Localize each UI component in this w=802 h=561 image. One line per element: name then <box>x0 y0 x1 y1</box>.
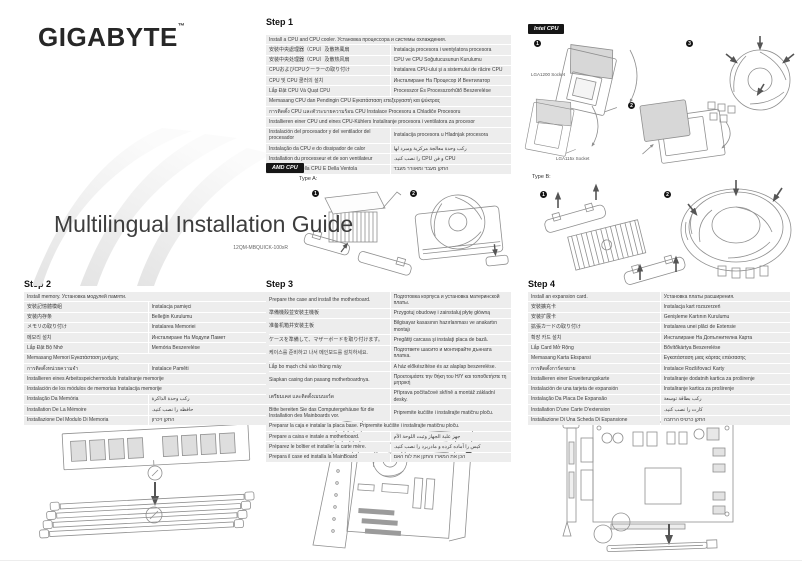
lang-cell: Installazione Di Una Scheda Di Espansion… <box>528 416 660 425</box>
lang-row: メモリの取り付けInstalarea Memoriei <box>24 323 269 332</box>
lang-cell: Инсталиране На Допълнителна Карта <box>661 333 790 342</box>
lang-cell: CPU 및 CPU 쿨러의 설치 <box>266 76 390 85</box>
intel-cpu-badge: Intel CPU <box>528 24 564 34</box>
lang-cell: Installation De La Mémoire <box>24 405 148 414</box>
lang-cell: Installazione Del Modulo Di Memoria <box>24 416 148 425</box>
intel-step1-marker: 1 <box>534 40 541 47</box>
lang-cell: Installieren einer CPU und eines CPU-Küh… <box>266 117 511 126</box>
lang-cell: Instalacja pamięci <box>149 302 269 311</box>
lang-cell: Příprava počítačové skříně a montáž zákl… <box>391 389 511 405</box>
lang-cell: Instalação Da Placa De Expansão <box>528 395 660 404</box>
lang-row: 케이스를 준비하고 나서 메인보드를 설치하세요.Подгответе шаси… <box>266 346 511 362</box>
lang-row: 準備機殼並安裝主機板Przygotuj obudowę i zainstaluj… <box>266 309 511 318</box>
lang-cell: Install memory. Установка модулей памяти… <box>24 292 269 301</box>
lang-cell: Processzor És Processzorhűtő Beszerelése <box>391 86 511 95</box>
lang-cell: Memória Beszerelése <box>149 343 269 352</box>
amd-step1-marker: 1 <box>312 190 319 197</box>
lang-cell: เตรียมเคส และติดตั้งเมนบอร์ด <box>266 389 390 405</box>
lang-row: ケースを準備して、マザーボードを取り付けます。Pregătiţi carcasa… <box>266 335 511 344</box>
lang-cell: Pripremite kućište i instalirajte matičn… <box>391 405 511 421</box>
lang-cell: Instalação Da Memória <box>24 395 148 404</box>
lang-row: Install a CPU and CPU cooler. Установка … <box>266 35 511 44</box>
lang-cell: התקן כרטיס הרחבה <box>661 416 790 425</box>
lang-cell: Preparar la caja e instalar la placa bas… <box>266 422 511 431</box>
type-b-label: Type B: <box>532 174 551 180</box>
lang-row: 准备机箱并安装主板Bilgisayar kasasının hazırlanma… <box>266 319 511 335</box>
lang-row: Memasang CPU dan Pendingin CPU Εγκατάστα… <box>266 97 511 106</box>
lang-row: Siapkan casing dan pasang motherboardnya… <box>266 372 511 388</box>
lang-cell: Prepara il case ed installa la MainBoard <box>266 453 390 462</box>
lang-row: Prepara il case ed installa la MainBoard… <box>266 453 511 462</box>
lang-cell: Instalarea unei plăci de Extensie <box>661 323 790 332</box>
lang-cell: ケースを準備して、マザーボードを取り付けます。 <box>266 335 390 344</box>
lang-cell: ركب وحدة الذاكرة <box>149 395 269 404</box>
lang-row: Lắp Đặt Bộ NhớMemória Beszerelése <box>24 343 269 352</box>
page-title: Multilingual Installation Guide <box>54 211 353 238</box>
lang-cell: Подгответе шасито и монтирайте дънната п… <box>391 346 511 362</box>
type-b-step1-marker: 1 <box>540 191 547 198</box>
lang-row: 메모리 설치Инсталиране На Модули Памет <box>24 333 269 342</box>
lang-cell: Προετοιμάστε την θήκη του Η/Υ και τοποθε… <box>391 372 511 388</box>
lang-row: 安裝記憶體模組Instalacja pamięci <box>24 302 269 311</box>
lang-cell: Установка платы расширения. <box>661 292 790 301</box>
lang-cell: Instalarea Memoriei <box>149 323 269 332</box>
lang-cell: Instalacja procesora i wentylatora proce… <box>391 45 511 54</box>
lang-cell: 準備機殼並安裝主機板 <box>266 309 390 318</box>
lang-cell: 케이스를 준비하고 나서 메인보드를 설치하세요. <box>266 346 390 362</box>
lang-row: Instalación del procesador y del ventila… <box>266 128 511 144</box>
lang-cell: 安装内存条 <box>24 313 148 322</box>
lang-row: Installazione Del Modulo Di Memoriaהתקן … <box>24 416 269 425</box>
memory-installation-illustration <box>35 423 275 541</box>
lang-cell: Pregătiţi carcasa şi instalaţi placa de … <box>391 335 511 344</box>
lang-row: Install an expansion card.Установка плат… <box>528 292 790 301</box>
lang-cell: Genişleme Kartının Kurulumu <box>661 313 790 322</box>
lang-row: Installieren einer ErweiterungskarteInst… <box>528 374 790 383</box>
lang-row: Préparez le boîtier et installer la cart… <box>266 442 511 451</box>
lang-row: การติดตั้ง CPU และตัวระบายความร้อน CPU I… <box>266 107 511 116</box>
lang-cell: 安裝中央處理器（CPU）及散熱風扇 <box>266 45 390 54</box>
lang-cell: 安裝記憶體模組 <box>24 302 148 311</box>
lang-row: Instalação Da Placa De Expansãoركب بطاقة… <box>528 395 790 404</box>
lang-cell: Bitte bereiten Sie das Computergehäuse f… <box>266 405 390 421</box>
lang-row: 安装内存条Belleğin Kurulumu <box>24 313 269 322</box>
lang-cell: CPU و فن CPU را نصب كنيد. <box>391 154 511 163</box>
lang-cell: حافظه را نصب كنيد. <box>149 405 269 414</box>
lang-row: การติดตั้งการ์ดขยายInstalace Rozšiřovací… <box>528 364 790 373</box>
lang-row: Prepare the case and install the motherb… <box>266 292 511 308</box>
lang-cell: 安装中央处理器（CPU）及散热风扇 <box>266 56 390 65</box>
lang-row: Prepare a caixa e instale a motherboard.… <box>266 432 511 441</box>
trademark-symbol: ™ <box>178 23 186 30</box>
lang-cell: Memasang CPU dan Pendingin CPU Εγκατάστα… <box>266 97 511 106</box>
lga1200-socket-label: LGA1200 Socket <box>531 72 565 77</box>
lang-cell: 安装扩展卡 <box>528 313 660 322</box>
lang-cell: Instalacja kart rozszerzeń <box>661 302 790 311</box>
lang-cell: Instaliranje kartica za proširenje <box>661 385 790 394</box>
lang-row: Installation De La Mémoireحافظه را نصب ك… <box>24 405 269 414</box>
step1-heading: Step 1 <box>266 17 293 27</box>
lang-cell: התקן מעבד ומאוורר מעבד <box>391 165 511 174</box>
lang-row: 安裝中央處理器（CPU）及散熱風扇Instalacja procesora i … <box>266 45 511 54</box>
intel-step2-marker: 2 <box>628 102 635 109</box>
lang-cell: CPU ve CPU Soğutucusunun Kurulumu <box>391 56 511 65</box>
lang-row: 확장 카드 설치Инсталиране На Допълнителна Карт… <box>528 333 790 342</box>
lang-cell: 확장 카드 설치 <box>528 333 660 342</box>
lang-row: Memasang Memori Εγκατάσταση μνήμης <box>24 354 269 363</box>
lang-row: 安裝擴充卡Instalacja kart rozszerzeń <box>528 302 790 311</box>
lang-row: Preparar la caja e instalar la placa bas… <box>266 422 511 431</box>
lang-row: 拡張カードの取り付けInstalarea unei plăci de Exten… <box>528 323 790 332</box>
amd-cpu-badge: AMD CPU <box>266 163 304 173</box>
lang-cell: ركب بطاقة توسعة <box>661 395 790 404</box>
lang-cell: הכן את המארז והתקן את לוח האם <box>391 453 511 462</box>
lang-cell: התקן זיכרון <box>149 416 269 425</box>
lang-cell: 安裝擴充卡 <box>528 302 660 311</box>
lang-cell: جهز علبة الجهاز وثبت اللوحة الأم <box>391 432 511 441</box>
lang-cell: كارت را نصب كنيد. <box>661 405 790 414</box>
lang-cell: Instaliranje dodatnih kartica za prošire… <box>661 374 790 383</box>
part-number: 12QM-MBQUICK-100xR <box>150 245 288 251</box>
lang-cell: Подготовка корпуса и установка материнск… <box>391 292 511 308</box>
lang-cell: Instalace Rozšiřovací Karty <box>661 364 790 373</box>
lang-cell: Instalacija procesora u Hladnjak proceso… <box>391 128 511 144</box>
lang-row: Install memory. Установка модулей памяти… <box>24 292 269 301</box>
lang-row: Instalación de los módulos de memorias I… <box>24 385 269 394</box>
lang-cell: Instalación de una tarjeta de expansión <box>528 385 660 394</box>
gigabyte-logo: GIGABYTE™ <box>38 22 185 53</box>
lang-row: Installazione Di Una Scheda Di Espansion… <box>528 416 790 425</box>
lang-cell: Bilgisayar kasasının hazırlanması ve ana… <box>391 319 511 335</box>
lang-cell: Memasang Karta Ekspansi <box>528 354 660 363</box>
lang-row: Instalação da CPU e do dissipador de cal… <box>266 144 511 153</box>
lang-cell: Préparez le boîtier et installer la cart… <box>266 442 390 451</box>
lang-cell: การติดตั้ง CPU และตัวระบายความร้อน CPU I… <box>266 107 511 116</box>
lang-cell: การติดตั้งการ์ดขยาย <box>528 364 660 373</box>
gigabyte-logo-text: GIGABYTE <box>38 22 178 52</box>
manual-page: GIGABYTE™ Multilingual Installation Guid… <box>0 0 802 561</box>
lang-cell: Belleğin Kurulumu <box>149 313 269 322</box>
lang-cell: ركب وحدة معالجة مركزية ومبرد لها <box>391 144 511 153</box>
lang-cell: CPUおよびCPUクーラーの取り付け <box>266 66 390 75</box>
step3-table: Prepare the case and install the motherb… <box>266 292 511 462</box>
step1-table: Install a CPU and CPU cooler. Установка … <box>266 35 511 174</box>
lang-row: Installieren einer CPU und eines CPU-Küh… <box>266 117 511 126</box>
lang-cell: Инсталиране На Процесор И Вентилатор <box>391 76 511 85</box>
lang-cell: Lắp Đặt Bộ Nhớ <box>24 343 148 352</box>
lang-row: Instalación de una tarjeta de expansiónI… <box>528 385 790 394</box>
lang-cell: Instalarea CPU-ului şi a sistemului de r… <box>391 66 511 75</box>
lang-cell: A ház előkészítése és az alaplap beszere… <box>391 362 511 371</box>
lang-cell: Memasang Memori Εγκατάσταση μνήμης <box>24 354 269 363</box>
type-b-step2-marker: 2 <box>664 191 671 198</box>
lang-row: Installieren eines Arbeitsspeichermoduls… <box>24 374 269 383</box>
type-a-label: Type A: <box>299 176 317 182</box>
lang-row: Lắp Card Mở RộngBővítőkártya Beszerelése <box>528 343 790 352</box>
lang-cell: Installieren einer Erweiterungskarte <box>528 374 660 383</box>
lang-row: 安装中央处理器（CPU）及散热风扇CPU ve CPU Soğutucusunu… <box>266 56 511 65</box>
lang-cell: Εγκατάσταση μιας κάρτας επέκτασης <box>661 354 790 363</box>
lang-cell: Инсталиране На Модули Памет <box>149 333 269 342</box>
intel-cpu-illustration <box>528 34 802 164</box>
lang-cell: Install a CPU and CPU cooler. Установка … <box>266 35 511 44</box>
lang-cell: 准备机箱并安装主板 <box>266 319 390 335</box>
lang-cell: Install an expansion card. <box>528 292 660 301</box>
lang-row: CPUおよびCPUクーラーの取り付けInstalarea CPU-ului şi… <box>266 66 511 75</box>
lang-cell: Lắp Đặt CPU Và Quạt CPU <box>266 86 390 95</box>
lang-row: Instalação Da Memóriaركب وحدة الذاكرة <box>24 395 269 404</box>
intel-step3-marker: 3 <box>686 40 693 47</box>
lang-cell: Instalace Paměti <box>149 364 269 373</box>
lang-row: Bitte bereiten Sie das Computergehäuse f… <box>266 405 511 421</box>
step4-table: Install an expansion card.Установка плат… <box>528 292 790 425</box>
lang-cell: Instalação da CPU e do dissipador de cal… <box>266 144 390 153</box>
amd-type-b-illustration <box>528 182 798 282</box>
amd-step2-marker: 2 <box>410 190 417 197</box>
lang-cell: Siapkan casing dan pasang motherboardnya… <box>266 372 390 388</box>
lang-cell: Bővítőkártya Beszerelése <box>661 343 790 352</box>
lang-row: การติดตั้งหน่วยความจำInstalace Paměti <box>24 364 269 373</box>
lang-cell: Przygotuj obudowę i zainstaluj płytę głó… <box>391 309 511 318</box>
lang-cell: Instalación de los módulos de memorias I… <box>24 385 269 394</box>
expansion-card-illustration <box>545 420 775 558</box>
swoosh-graphic <box>42 126 272 288</box>
lang-cell: Prepare the case and install the motherb… <box>266 292 390 308</box>
lang-cell: 拡張カードの取り付け <box>528 323 660 332</box>
lang-row: Lắp Đặt CPU Và Quạt CPUProcesszor És Pro… <box>266 86 511 95</box>
lang-row: Memasang Karta EkspansiΕγκατάσταση μιας … <box>528 354 790 363</box>
lang-cell: Lắp Card Mở Rộng <box>528 343 660 352</box>
lang-cell: メモリの取り付け <box>24 323 148 332</box>
lang-cell: Prepare a caixa e instale a motherboard. <box>266 432 390 441</box>
lang-row: Installation D'une Carte D'extensionكارت… <box>528 405 790 414</box>
lang-row: 安装扩展卡Genişleme Kartının Kurulumu <box>528 313 790 322</box>
lang-cell: Lắp bo mạch chủ vào thùng máy <box>266 362 390 371</box>
lang-row: Lắp bo mạch chủ vào thùng máyA ház előké… <box>266 362 511 371</box>
lang-cell: 메모리 설치 <box>24 333 148 342</box>
lang-row: เตรียมเคส และติดตั้งเมนบอร์ดPříprava poč… <box>266 389 511 405</box>
lang-row: CPU 및 CPU 쿨러의 설치Инсталиране На Процесор … <box>266 76 511 85</box>
lang-cell: Installieren eines Arbeitsspeichermoduls… <box>24 374 269 383</box>
lang-cell: كيس را آماده كرده و مادربرد را نصب كنيد. <box>391 442 511 451</box>
lang-cell: Installation D'une Carte D'extension <box>528 405 660 414</box>
lga115x-socket-label: LGA115x Socket <box>556 156 589 161</box>
lang-cell: การติดตั้งหน่วยความจำ <box>24 364 148 373</box>
step2-table: Install memory. Установка модулей памяти… <box>24 292 269 425</box>
lang-cell: Instalación del procesador y del ventila… <box>266 128 390 144</box>
